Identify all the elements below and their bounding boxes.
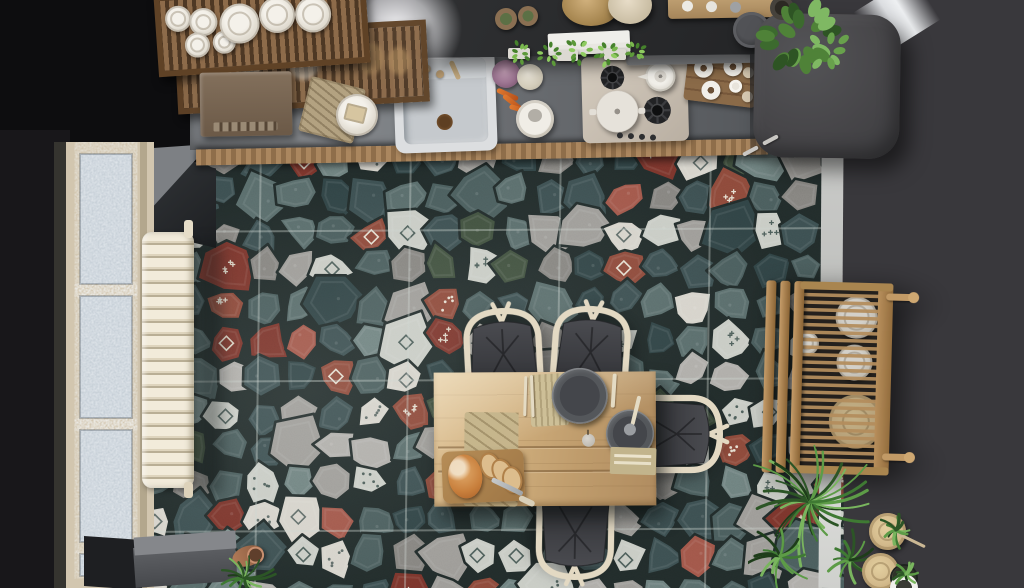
dining-table bbox=[434, 371, 657, 506]
prep-bowl bbox=[516, 100, 554, 138]
bench-plant bbox=[200, 546, 290, 588]
burner-grate-icon bbox=[599, 64, 626, 91]
saucer bbox=[700, 80, 721, 101]
radiator-pipe bbox=[184, 220, 193, 238]
plate-stack bbox=[258, 0, 296, 34]
plate-stack bbox=[294, 0, 332, 34]
kitchen-topdown-scene bbox=[0, 0, 1024, 588]
blurred-glass bbox=[387, 46, 410, 75]
fork bbox=[523, 376, 527, 416]
basket-plant bbox=[880, 512, 936, 564]
plate-with-pastry bbox=[336, 94, 378, 136]
trolley-handle bbox=[886, 293, 915, 301]
cutlery-mat bbox=[610, 447, 657, 475]
window bbox=[54, 142, 154, 588]
window-panes bbox=[80, 154, 132, 576]
window-svg bbox=[54, 142, 154, 588]
stove-knob bbox=[650, 134, 656, 140]
cactus-pot bbox=[495, 8, 517, 30]
pestle bbox=[528, 109, 542, 122]
cup bbox=[184, 32, 211, 59]
mug bbox=[728, 79, 742, 93]
radiator-pipe-bottom bbox=[184, 482, 193, 498]
basket-plant bbox=[886, 558, 930, 588]
pothos-plant bbox=[748, 0, 863, 85]
cup bbox=[164, 5, 192, 33]
gray-plate bbox=[552, 368, 608, 424]
radiator bbox=[142, 232, 194, 488]
stove-knob bbox=[639, 134, 645, 140]
stove-knob bbox=[617, 132, 623, 138]
spoon bbox=[611, 374, 617, 408]
burner-grate-icon bbox=[642, 95, 673, 126]
knife-handle bbox=[518, 495, 536, 508]
herbs bbox=[506, 38, 676, 68]
counter-appliance bbox=[199, 71, 292, 137]
radiator-shadow bbox=[196, 242, 222, 494]
stove-knob bbox=[628, 133, 634, 139]
small-vase bbox=[582, 434, 595, 447]
cactus-pot bbox=[518, 6, 538, 26]
spoon-bowl bbox=[624, 424, 636, 436]
cooking-pot bbox=[596, 90, 639, 133]
